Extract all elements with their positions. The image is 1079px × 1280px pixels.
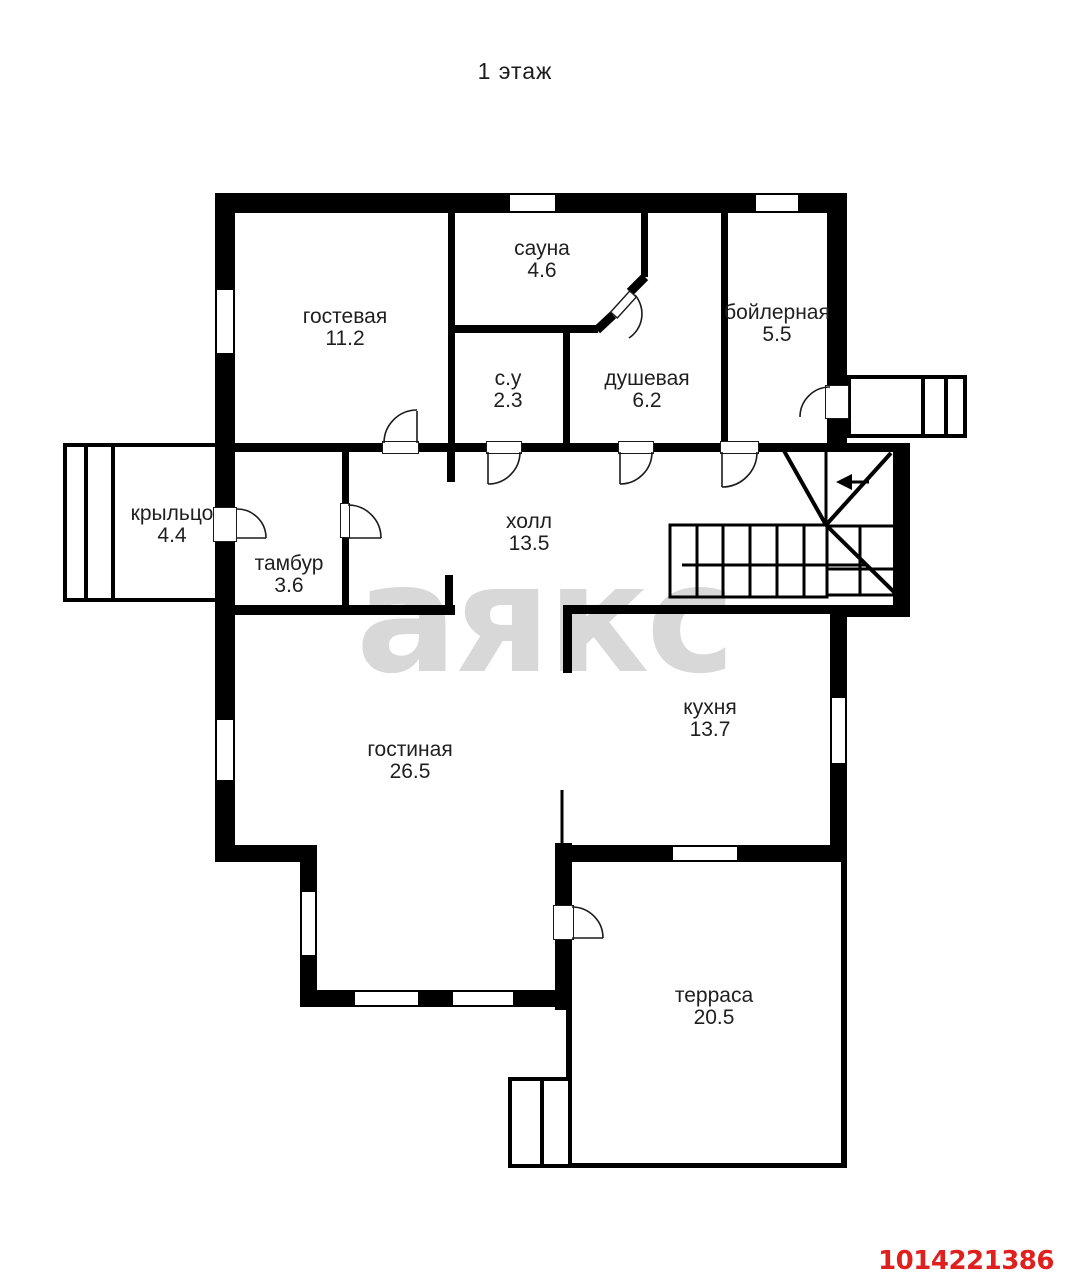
room-name: душевая bbox=[604, 368, 689, 390]
room-name: гостиная bbox=[367, 739, 452, 761]
terrace-wall-right bbox=[841, 862, 847, 1168]
room-area: 3.6 bbox=[255, 575, 324, 597]
room-label-terrace: терраса 20.5 bbox=[675, 985, 753, 1029]
room-area: 5.5 bbox=[724, 324, 830, 346]
door-leaf-sauna bbox=[611, 291, 637, 318]
wall-hall-top bbox=[520, 443, 620, 452]
wall-stair-right bbox=[893, 452, 910, 612]
room-area: 11.2 bbox=[303, 328, 387, 350]
stair-diagonals bbox=[783, 449, 897, 595]
room-label-sauna: сауна 4.6 bbox=[514, 238, 570, 282]
wall-exterior-left bbox=[215, 542, 235, 720]
door-terrace bbox=[553, 905, 574, 940]
wall-living-bottom bbox=[418, 990, 453, 1007]
stair-winder-treads bbox=[827, 526, 893, 595]
wall-kitchen-right bbox=[830, 605, 847, 698]
terrace-step-line bbox=[540, 1077, 544, 1168]
wall-wc-right bbox=[563, 333, 570, 452]
side-step-line bbox=[944, 375, 948, 438]
door-vestibule bbox=[340, 503, 350, 538]
window bbox=[510, 193, 555, 213]
wall-living-left-lower bbox=[300, 955, 317, 992]
wall-vestibule-right bbox=[342, 452, 349, 503]
wall-exterior-right bbox=[827, 417, 847, 443]
wall-exterior-right bbox=[827, 193, 847, 387]
room-area: 2.3 bbox=[493, 390, 522, 412]
wall-vestibule-right bbox=[342, 538, 349, 605]
wall-hall-stub-lower bbox=[445, 575, 453, 615]
room-name: сауна bbox=[514, 238, 570, 260]
room-area: 20.5 bbox=[675, 1007, 753, 1029]
door-arc-sauna bbox=[629, 295, 642, 338]
listing-id: 1014221386 bbox=[878, 1246, 1054, 1276]
room-label-boiler: бойлерная 5.5 bbox=[724, 302, 830, 346]
wall-kitchen-top bbox=[563, 605, 830, 614]
wall-hall-top bbox=[757, 443, 910, 452]
room-area: 6.2 bbox=[604, 390, 689, 412]
door-arc-entrance bbox=[237, 509, 266, 538]
wall-exterior-left bbox=[215, 193, 235, 290]
sauna-diagonal-wall bbox=[597, 277, 645, 330]
porch-step-line bbox=[84, 443, 88, 602]
wall-living-top bbox=[215, 605, 455, 615]
door-boiler-exterior bbox=[825, 385, 849, 419]
wall-kitchen-divider bbox=[563, 605, 572, 673]
room-name: тамбур bbox=[255, 553, 324, 575]
room-label-kitchen: кухня 13.7 bbox=[683, 697, 736, 741]
room-name: бойлерная bbox=[724, 302, 830, 324]
window bbox=[215, 720, 235, 780]
room-label-living: гостиная 26.5 bbox=[367, 739, 452, 783]
door-wc bbox=[486, 441, 522, 454]
room-name: терраса bbox=[675, 985, 753, 1007]
room-label-porch: крыльцо 4.4 bbox=[131, 503, 214, 547]
stair-direction-arrow bbox=[836, 474, 869, 490]
window bbox=[215, 290, 235, 353]
window bbox=[673, 845, 737, 862]
side-steps-outline bbox=[847, 375, 967, 438]
room-area: 13.5 bbox=[506, 533, 552, 555]
room-name: холл bbox=[506, 511, 552, 533]
window bbox=[756, 193, 798, 213]
room-area: 4.4 bbox=[131, 525, 214, 547]
room-name: кухня bbox=[683, 697, 736, 719]
wall-living-step-corner bbox=[215, 845, 317, 862]
room-area: 13.7 bbox=[683, 719, 736, 741]
wall-hall-top bbox=[235, 443, 383, 452]
door-guestroom bbox=[382, 441, 419, 454]
page-title: 1 этаж bbox=[455, 58, 575, 85]
door-arc-boiler-hall bbox=[722, 452, 757, 487]
window bbox=[300, 892, 317, 955]
room-area: 26.5 bbox=[367, 761, 452, 783]
window bbox=[355, 990, 418, 1007]
wall-living-left-lower bbox=[300, 862, 317, 892]
floor-plan: 1 этаж аякс bbox=[0, 0, 1079, 1280]
side-step-line bbox=[921, 375, 925, 438]
room-label-hall: холл 13.5 bbox=[506, 511, 552, 555]
room-name: с.у bbox=[493, 368, 522, 390]
door-arc-shower bbox=[620, 452, 652, 484]
wall-sauna-bottom bbox=[448, 325, 598, 333]
porch-step-line bbox=[111, 443, 115, 602]
room-name: гостевая bbox=[303, 306, 387, 328]
door-entrance bbox=[213, 507, 237, 542]
room-area: 4.6 bbox=[514, 260, 570, 282]
door-shower bbox=[618, 441, 654, 454]
wall-sauna-right bbox=[641, 207, 648, 277]
room-label-guestroom: гостевая 11.2 bbox=[303, 306, 387, 350]
window bbox=[453, 990, 513, 1007]
watermark: аякс bbox=[356, 545, 732, 695]
room-name: крыльцо bbox=[131, 503, 214, 525]
door-arc-wc bbox=[488, 452, 520, 484]
wall-hall-stub-upper bbox=[447, 452, 455, 482]
wall-exterior-left bbox=[215, 353, 235, 507]
wall-living-bottom bbox=[300, 990, 355, 1007]
window bbox=[830, 698, 847, 763]
terrace-wall-bottom bbox=[566, 1163, 847, 1168]
room-label-shower: душевая 6.2 bbox=[604, 368, 689, 412]
room-label-wc: с.у 2.3 bbox=[493, 368, 522, 412]
wall-terrace-left bbox=[555, 940, 572, 1010]
wall-hall-top bbox=[652, 443, 722, 452]
door-boiler-hall bbox=[720, 441, 759, 454]
door-arc-terrace bbox=[572, 907, 603, 938]
door-arc-guestroom bbox=[384, 410, 417, 443]
room-label-vestibule: тамбур 3.6 bbox=[255, 553, 324, 597]
wall-kitchen-bottom bbox=[555, 845, 673, 862]
wall-kitchen-bottom bbox=[737, 845, 847, 862]
